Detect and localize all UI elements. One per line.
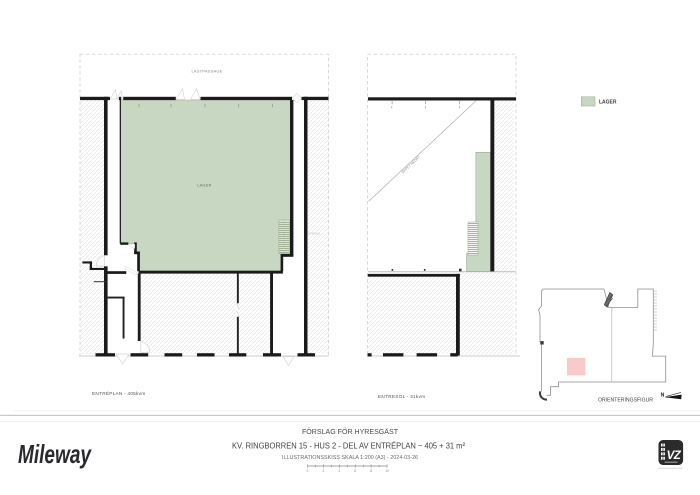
svg-text:10: 10	[385, 469, 389, 473]
svg-text:LAGER: LAGER	[599, 100, 617, 106]
svg-text:LASTPASSAGE: LASTPASSAGE	[191, 69, 222, 74]
svg-text:4: 4	[338, 469, 340, 473]
svg-text:6: 6	[354, 469, 356, 473]
svg-text:ENTRESOL - 31kvm: ENTRESOL - 31kvm	[378, 394, 425, 400]
svg-text:FÖRSLAG FÖR HYRESGÄST: FÖRSLAG FÖR HYRESGÄST	[302, 427, 398, 436]
svg-text:ILLUSTRATIONSSKISS SKALA 1:200: ILLUSTRATIONSSKISS SKALA 1:200 (A3) - 20…	[282, 455, 418, 461]
svg-text:TRAPPHUS: TRAPPHUS	[307, 233, 320, 236]
svg-text:ENTRÉPLAN - 405kvm: ENTRÉPLAN - 405kvm	[92, 390, 145, 397]
svg-text:0: 0	[307, 469, 309, 473]
svg-text:N: N	[661, 393, 665, 399]
svg-text:ORIENTERINGSFIGUR: ORIENTERINGSFIGUR	[598, 397, 653, 403]
svg-text:KV. RINGBORREN 15 - HUS 2 - DE: KV. RINGBORREN 15 - HUS 2 - DEL AV ENTRÉ…	[232, 441, 465, 451]
svg-text:Mileway: Mileway	[18, 439, 92, 469]
svg-text:8: 8	[370, 469, 372, 473]
svg-text:LAGER: LAGER	[197, 183, 211, 187]
svg-text:2: 2	[323, 469, 325, 473]
svg-text:VZ: VZ	[667, 450, 682, 462]
